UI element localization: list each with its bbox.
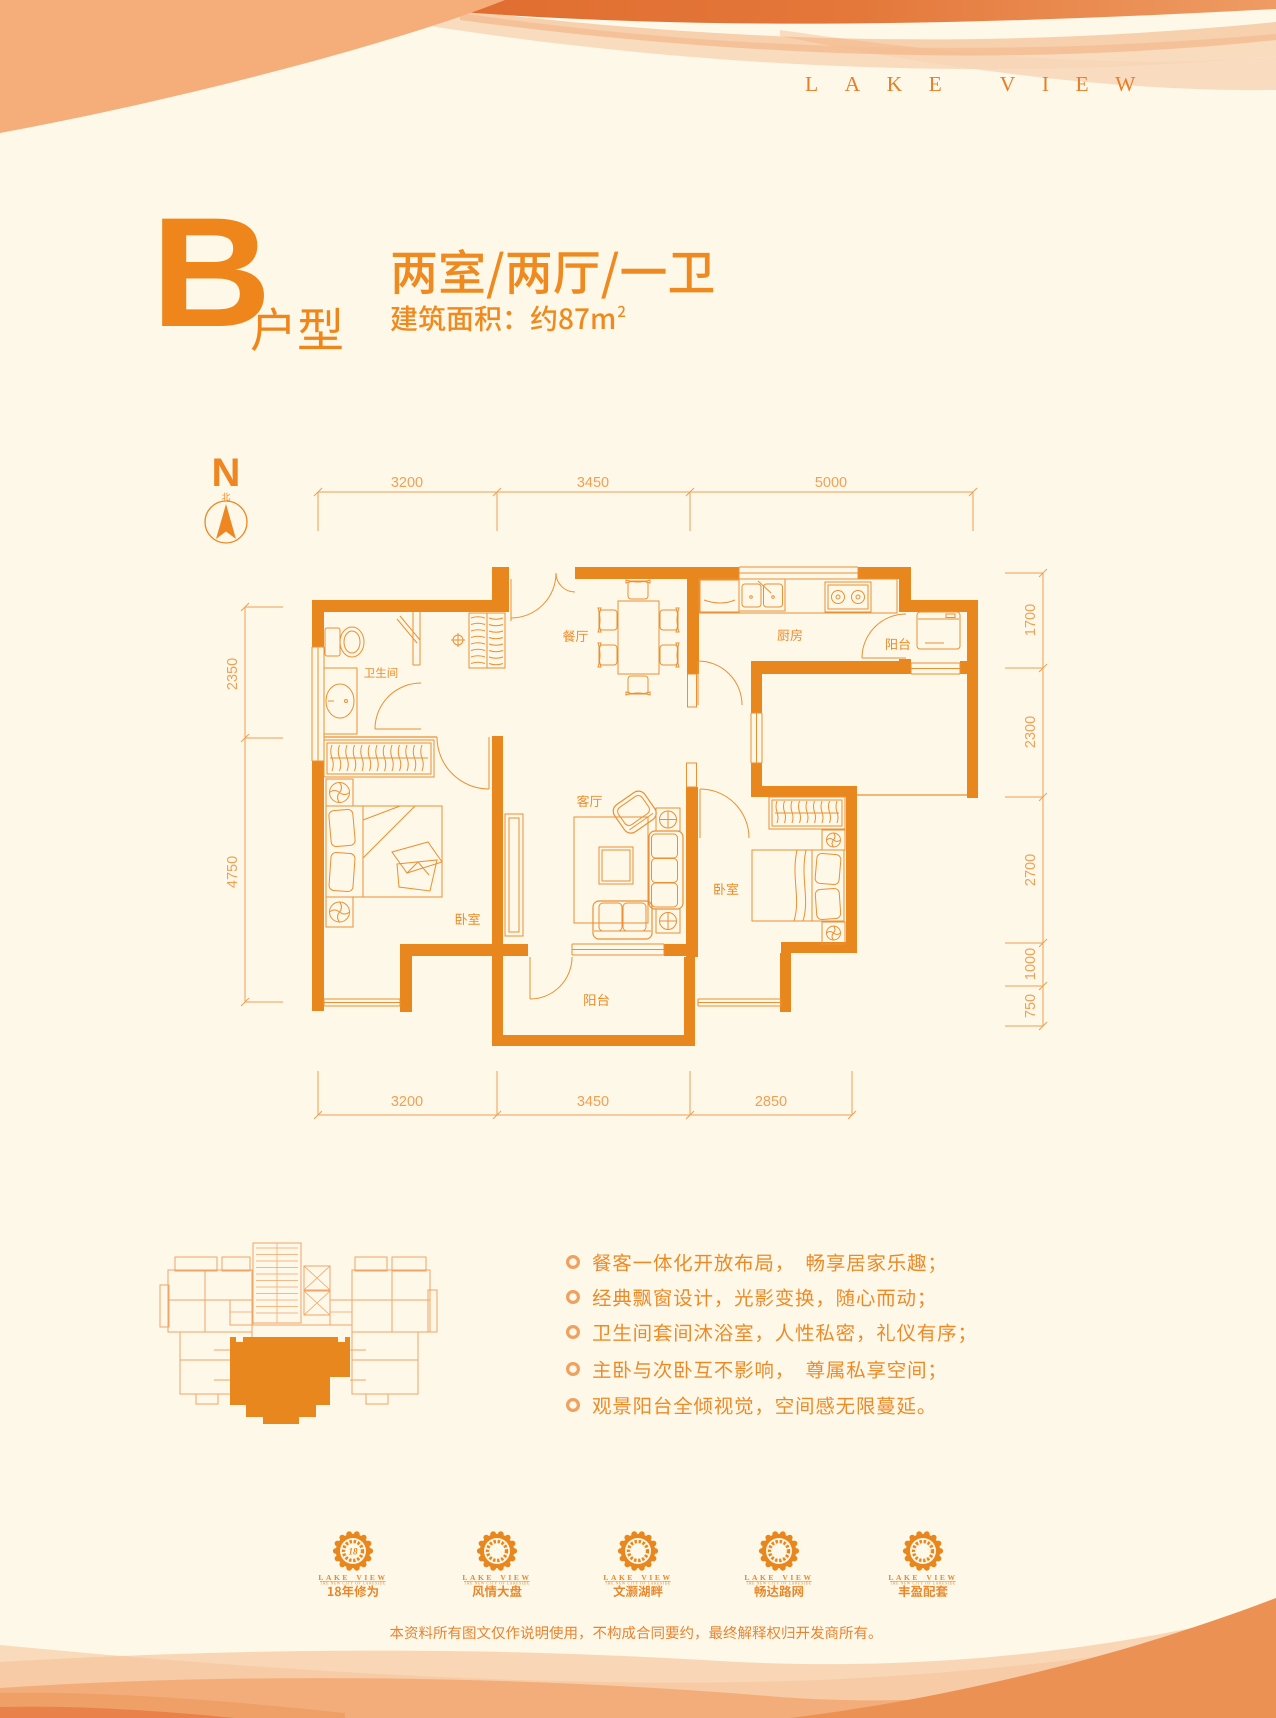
svg-text:B: B [151,186,272,360]
svg-text:1000: 1000 [1023,948,1039,980]
svg-text:18: 18 [349,1547,359,1557]
svg-text:LAKE VIEW: LAKE VIEW [805,72,1162,96]
svg-text:2350: 2350 [225,658,241,690]
svg-text:1700: 1700 [1023,604,1039,636]
svg-text:3450: 3450 [577,1094,609,1110]
svg-text:N: N [212,451,241,495]
svg-text:THE NEW CITY OF LAKESIDE: THE NEW CITY OF LAKESIDE [605,1582,671,1586]
svg-text:3200: 3200 [391,1094,423,1110]
svg-text:5000: 5000 [815,475,847,491]
svg-text:THE NEW CITY OF LAKESIDE: THE NEW CITY OF LAKESIDE [320,1582,386,1586]
svg-text:THE NEW CITY OF LAKESIDE: THE NEW CITY OF LAKESIDE [746,1582,812,1586]
svg-text:750: 750 [1023,994,1039,1018]
svg-text:THE NEW CITY OF LAKESIDE: THE NEW CITY OF LAKESIDE [464,1582,530,1586]
svg-text:THE NEW CITY OF LAKESIDE: THE NEW CITY OF LAKESIDE [890,1582,956,1586]
svg-text:4750: 4750 [225,856,241,888]
svg-text:2700: 2700 [1023,854,1039,886]
svg-text:2300: 2300 [1023,716,1039,748]
svg-text:3200: 3200 [391,475,423,491]
svg-text:2850: 2850 [755,1094,787,1110]
svg-text:3450: 3450 [577,475,609,491]
